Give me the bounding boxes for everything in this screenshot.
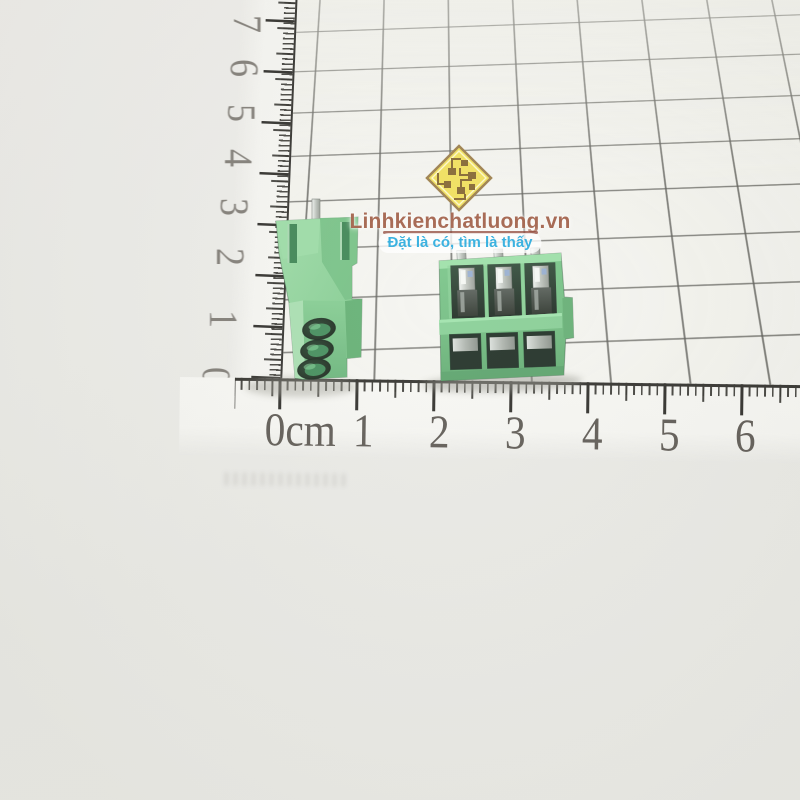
right-block-side-tab	[562, 298, 573, 338]
left-block-slot-left-highlight	[288, 224, 290, 263]
circuit-diamond-logo	[424, 143, 494, 213]
terminal-blocks-art	[0, 0, 800, 800]
right-block-screw-clamps	[456, 265, 551, 316]
terminal-block-side-view	[245, 199, 362, 397]
terminal-block-front-view	[418, 247, 582, 395]
left-block-shadow	[245, 377, 357, 397]
left-block-slot-right-highlight	[340, 222, 342, 260]
photo-canvas: 7 6 5 4 3 2 1 0 0cm 1 2 3 4 5 6	[0, 0, 800, 800]
left-block-top-highlight	[276, 219, 320, 260]
watermark-subtitle: Đặt là có, tìm là thấy	[378, 233, 541, 253]
left-block-tower-right-face	[345, 299, 362, 359]
right-block-wire-openings	[449, 331, 555, 369]
